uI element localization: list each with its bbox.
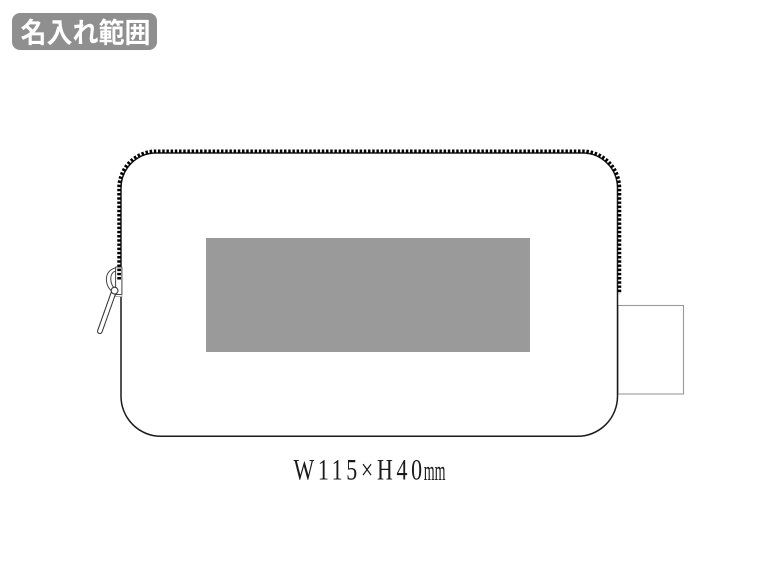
svg-text:mm: mm — [424, 455, 446, 487]
svg-text:W115×H40: W115×H40 — [294, 453, 426, 486]
